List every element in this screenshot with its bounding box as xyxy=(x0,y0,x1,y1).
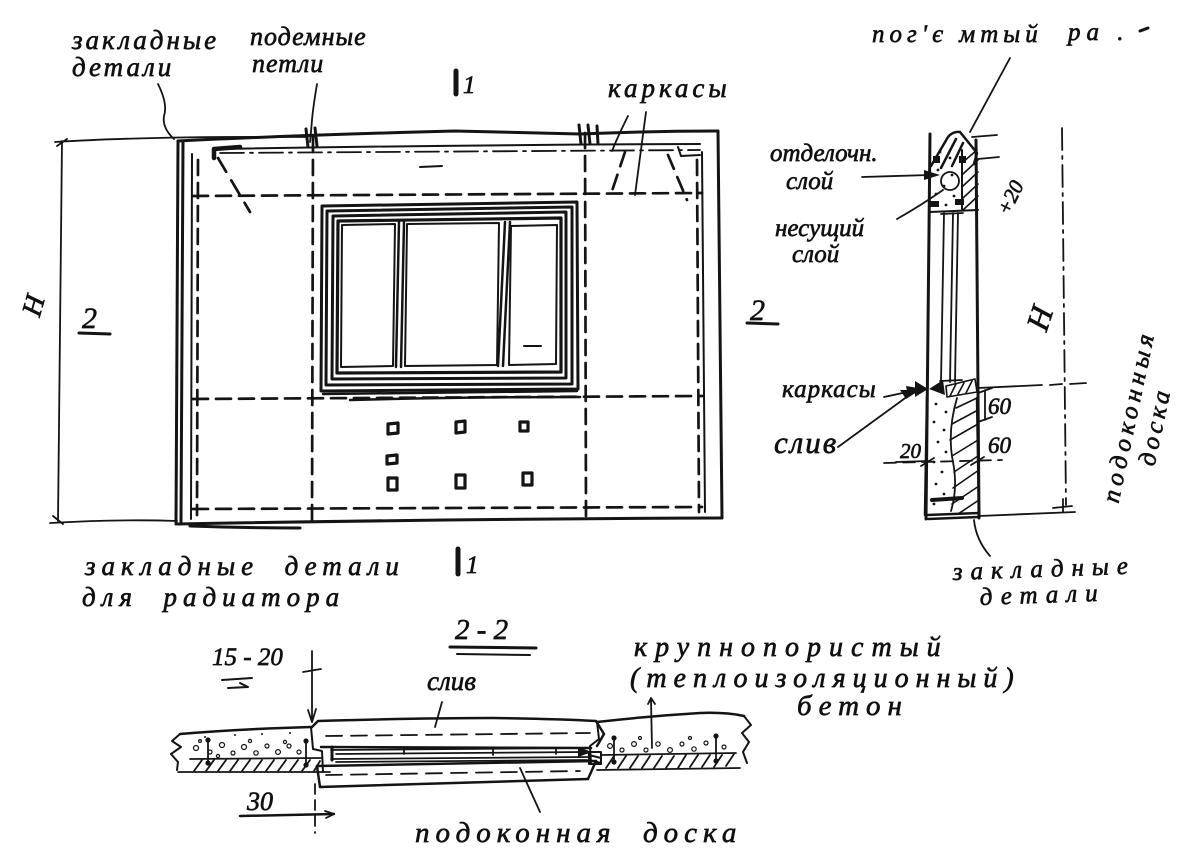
svg-text:ра .: ра . xyxy=(1066,19,1130,46)
svg-text:слой: слой xyxy=(786,168,834,195)
svg-text:подемные: подемные xyxy=(250,22,367,51)
svg-text:детали: детали xyxy=(979,580,1106,611)
svg-text:15 - 20: 15 - 20 xyxy=(212,644,283,671)
svg-text:1: 1 xyxy=(463,72,476,99)
svg-text:слив: слив xyxy=(774,425,838,460)
svg-text:каркасы: каркасы xyxy=(608,73,731,103)
svg-text:1: 1 xyxy=(466,552,479,579)
svg-text:слив: слив xyxy=(427,666,476,696)
svg-text:каркасы: каркасы xyxy=(782,376,877,403)
svg-text:закладные детали: закладные детали xyxy=(84,551,405,581)
svg-text:подоконная доска: подоконная доска xyxy=(415,817,742,849)
svg-text:2 - 2: 2 - 2 xyxy=(455,614,508,646)
svg-text:для радиатора: для радиатора xyxy=(82,582,345,612)
svg-text:60: 60 xyxy=(988,433,1012,458)
svg-text:пог'є мтый: пог'є мтый xyxy=(872,21,1043,48)
svg-text:несущий: несущий xyxy=(775,215,865,242)
svg-text:60: 60 xyxy=(988,394,1012,419)
svg-text:отделочн.: отделочн. xyxy=(770,140,878,167)
svg-text:крупнопористый: крупнопористый xyxy=(634,632,949,663)
svg-text:детали: детали xyxy=(72,52,174,82)
svg-text:20: 20 xyxy=(900,439,922,463)
svg-text:30: 30 xyxy=(246,787,273,816)
svg-text:закладные: закладные xyxy=(71,25,219,55)
svg-text:2: 2 xyxy=(82,302,97,335)
svg-text:слой: слой xyxy=(792,241,840,268)
svg-text:петли: петли xyxy=(252,49,324,78)
svg-text:бетон: бетон xyxy=(797,690,909,722)
